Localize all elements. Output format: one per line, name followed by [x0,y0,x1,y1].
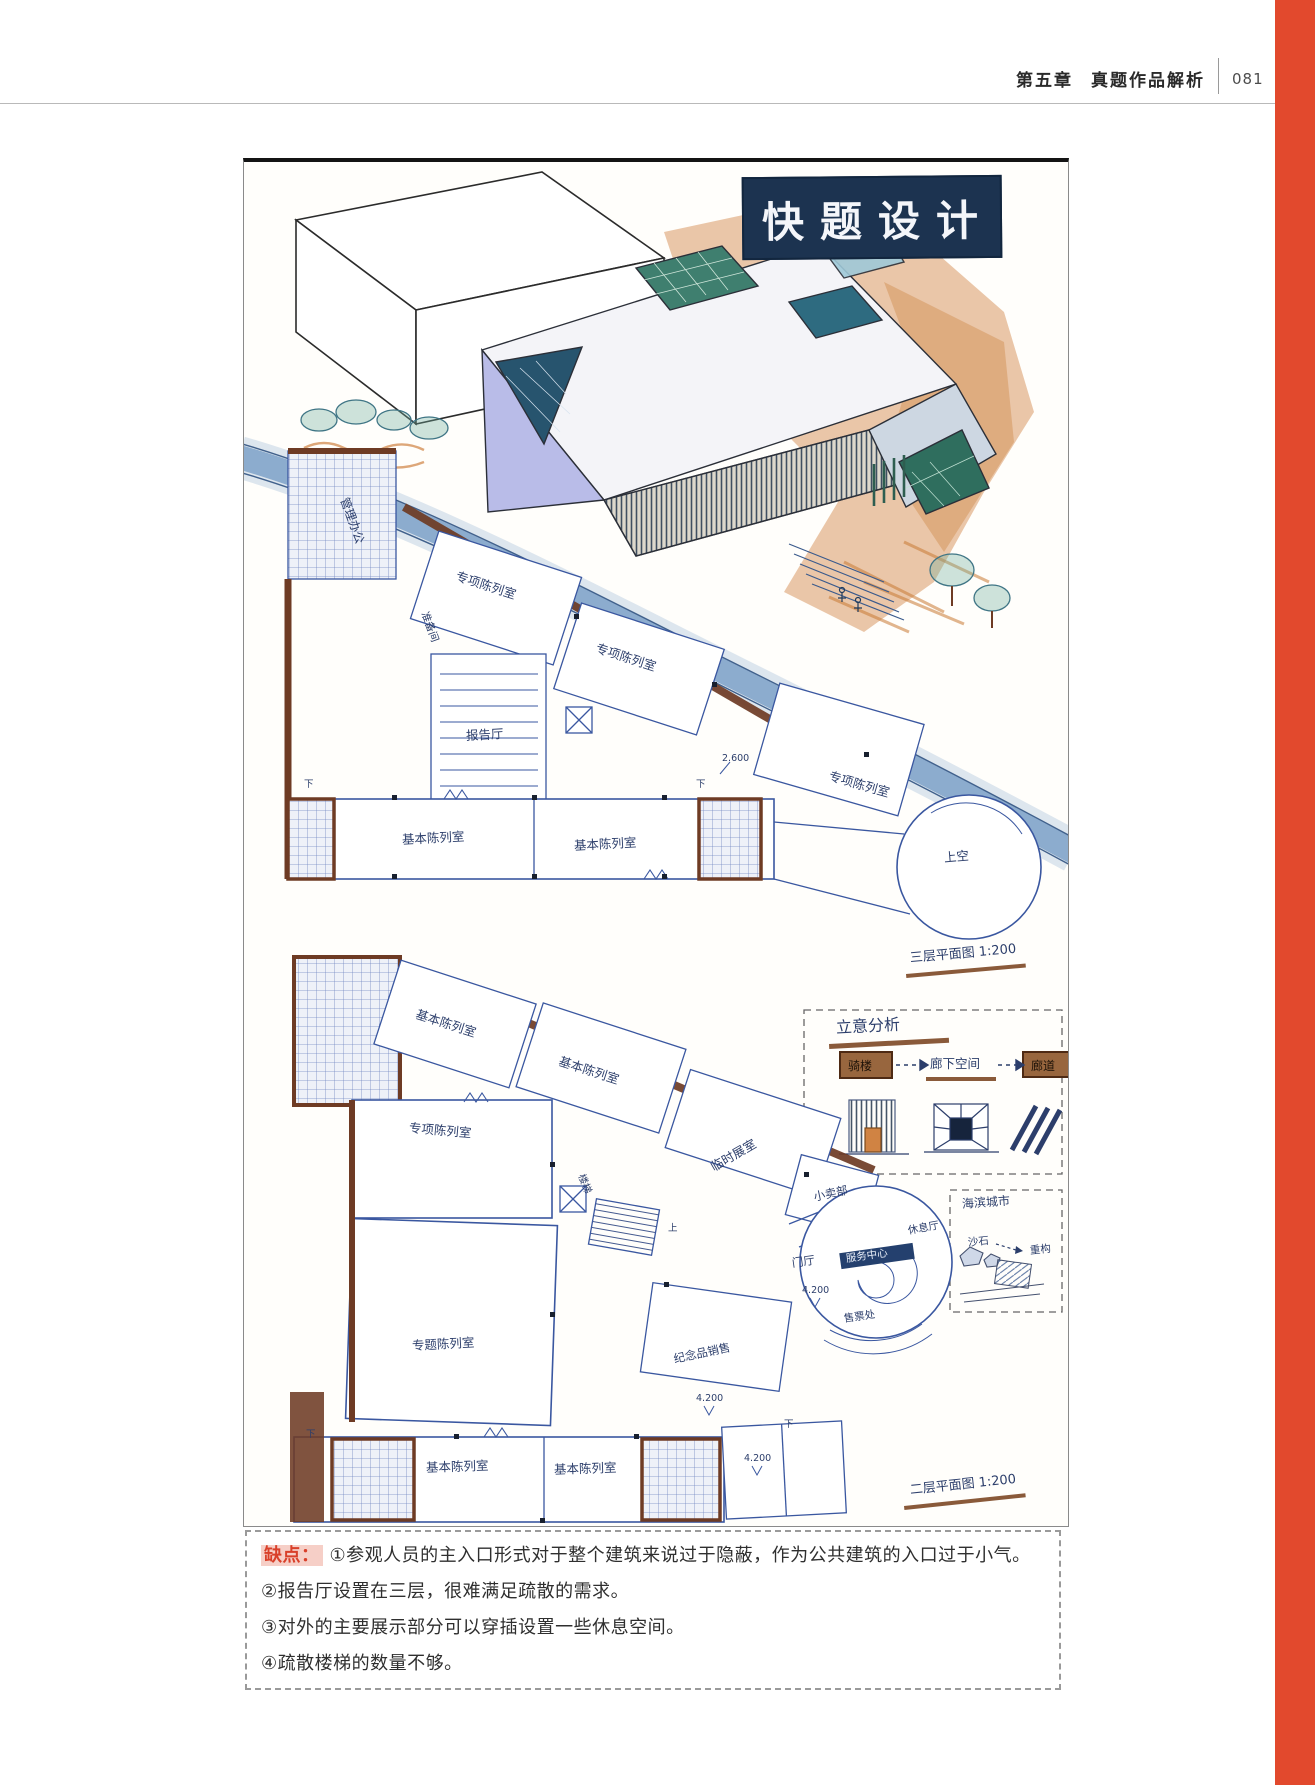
book-page: 第五章真题作品解析 081 [0,0,1315,1785]
critique-point: ③对外的主要展示部分可以穿插设置一些休息空间。 [261,1617,685,1638]
critique-line: 缺点：①参观人员的主入口形式对于整个建筑来说过于隐蔽，作为公共建筑的入口过于小气… [261,1542,1045,1570]
critique-line: ④疏散楼梯的数量不够。 [261,1650,1045,1678]
page-edge-band [1275,0,1315,1785]
page-number: 081 [1232,70,1264,88]
section-label: 真题作品解析 [1091,71,1205,91]
critique-point: ④疏散楼梯的数量不够。 [261,1653,463,1674]
sketch-linework-svg [244,162,1068,1526]
critique-line: ②报告厅设置在三层，很难满足疏散的需求。 [261,1578,1045,1606]
critique-point: ②报告厅设置在三层，很难满足疏散的需求。 [261,1581,629,1602]
sketch-title-logo: 快题设计 [742,175,1003,260]
critique-tag: 缺点： [261,1545,323,1566]
critique-box: 缺点：①参观人员的主入口形式对于整个建筑来说过于隐蔽，作为公共建筑的入口过于小气… [245,1530,1061,1690]
critique-line: ③对外的主要展示部分可以穿插设置一些休息空间。 [261,1614,1045,1642]
header-divider [1218,58,1219,94]
concept-box [804,1010,1068,1174]
running-header: 第五章真题作品解析 [0,66,1205,91]
header-rule [0,103,1275,104]
sketch-artwork-panel: 快题设计 管理办公准备间专项陈列室专项陈列室专项陈列室报告厅基本陈列室基本陈列室… [243,158,1069,1527]
site-box [950,1190,1062,1312]
chapter-label: 第五章 [1016,71,1073,91]
critique-point: ①参观人员的主入口形式对于整个建筑来说过于隐蔽，作为公共建筑的入口过于小气。 [330,1545,1031,1566]
